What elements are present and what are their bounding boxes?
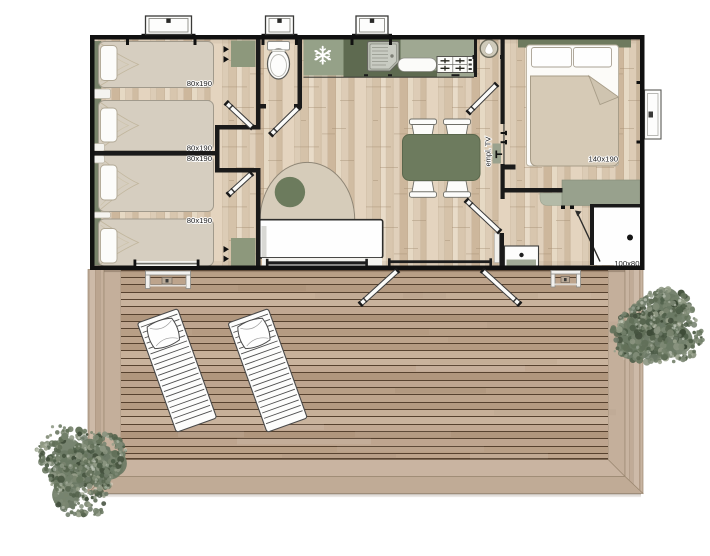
svg-text:empl. TV: empl. TV [484,137,493,167]
svg-text:80x190: 80x190 [187,216,212,225]
svg-text:80x190: 80x190 [187,79,212,88]
svg-text:140x190: 140x190 [589,155,619,164]
